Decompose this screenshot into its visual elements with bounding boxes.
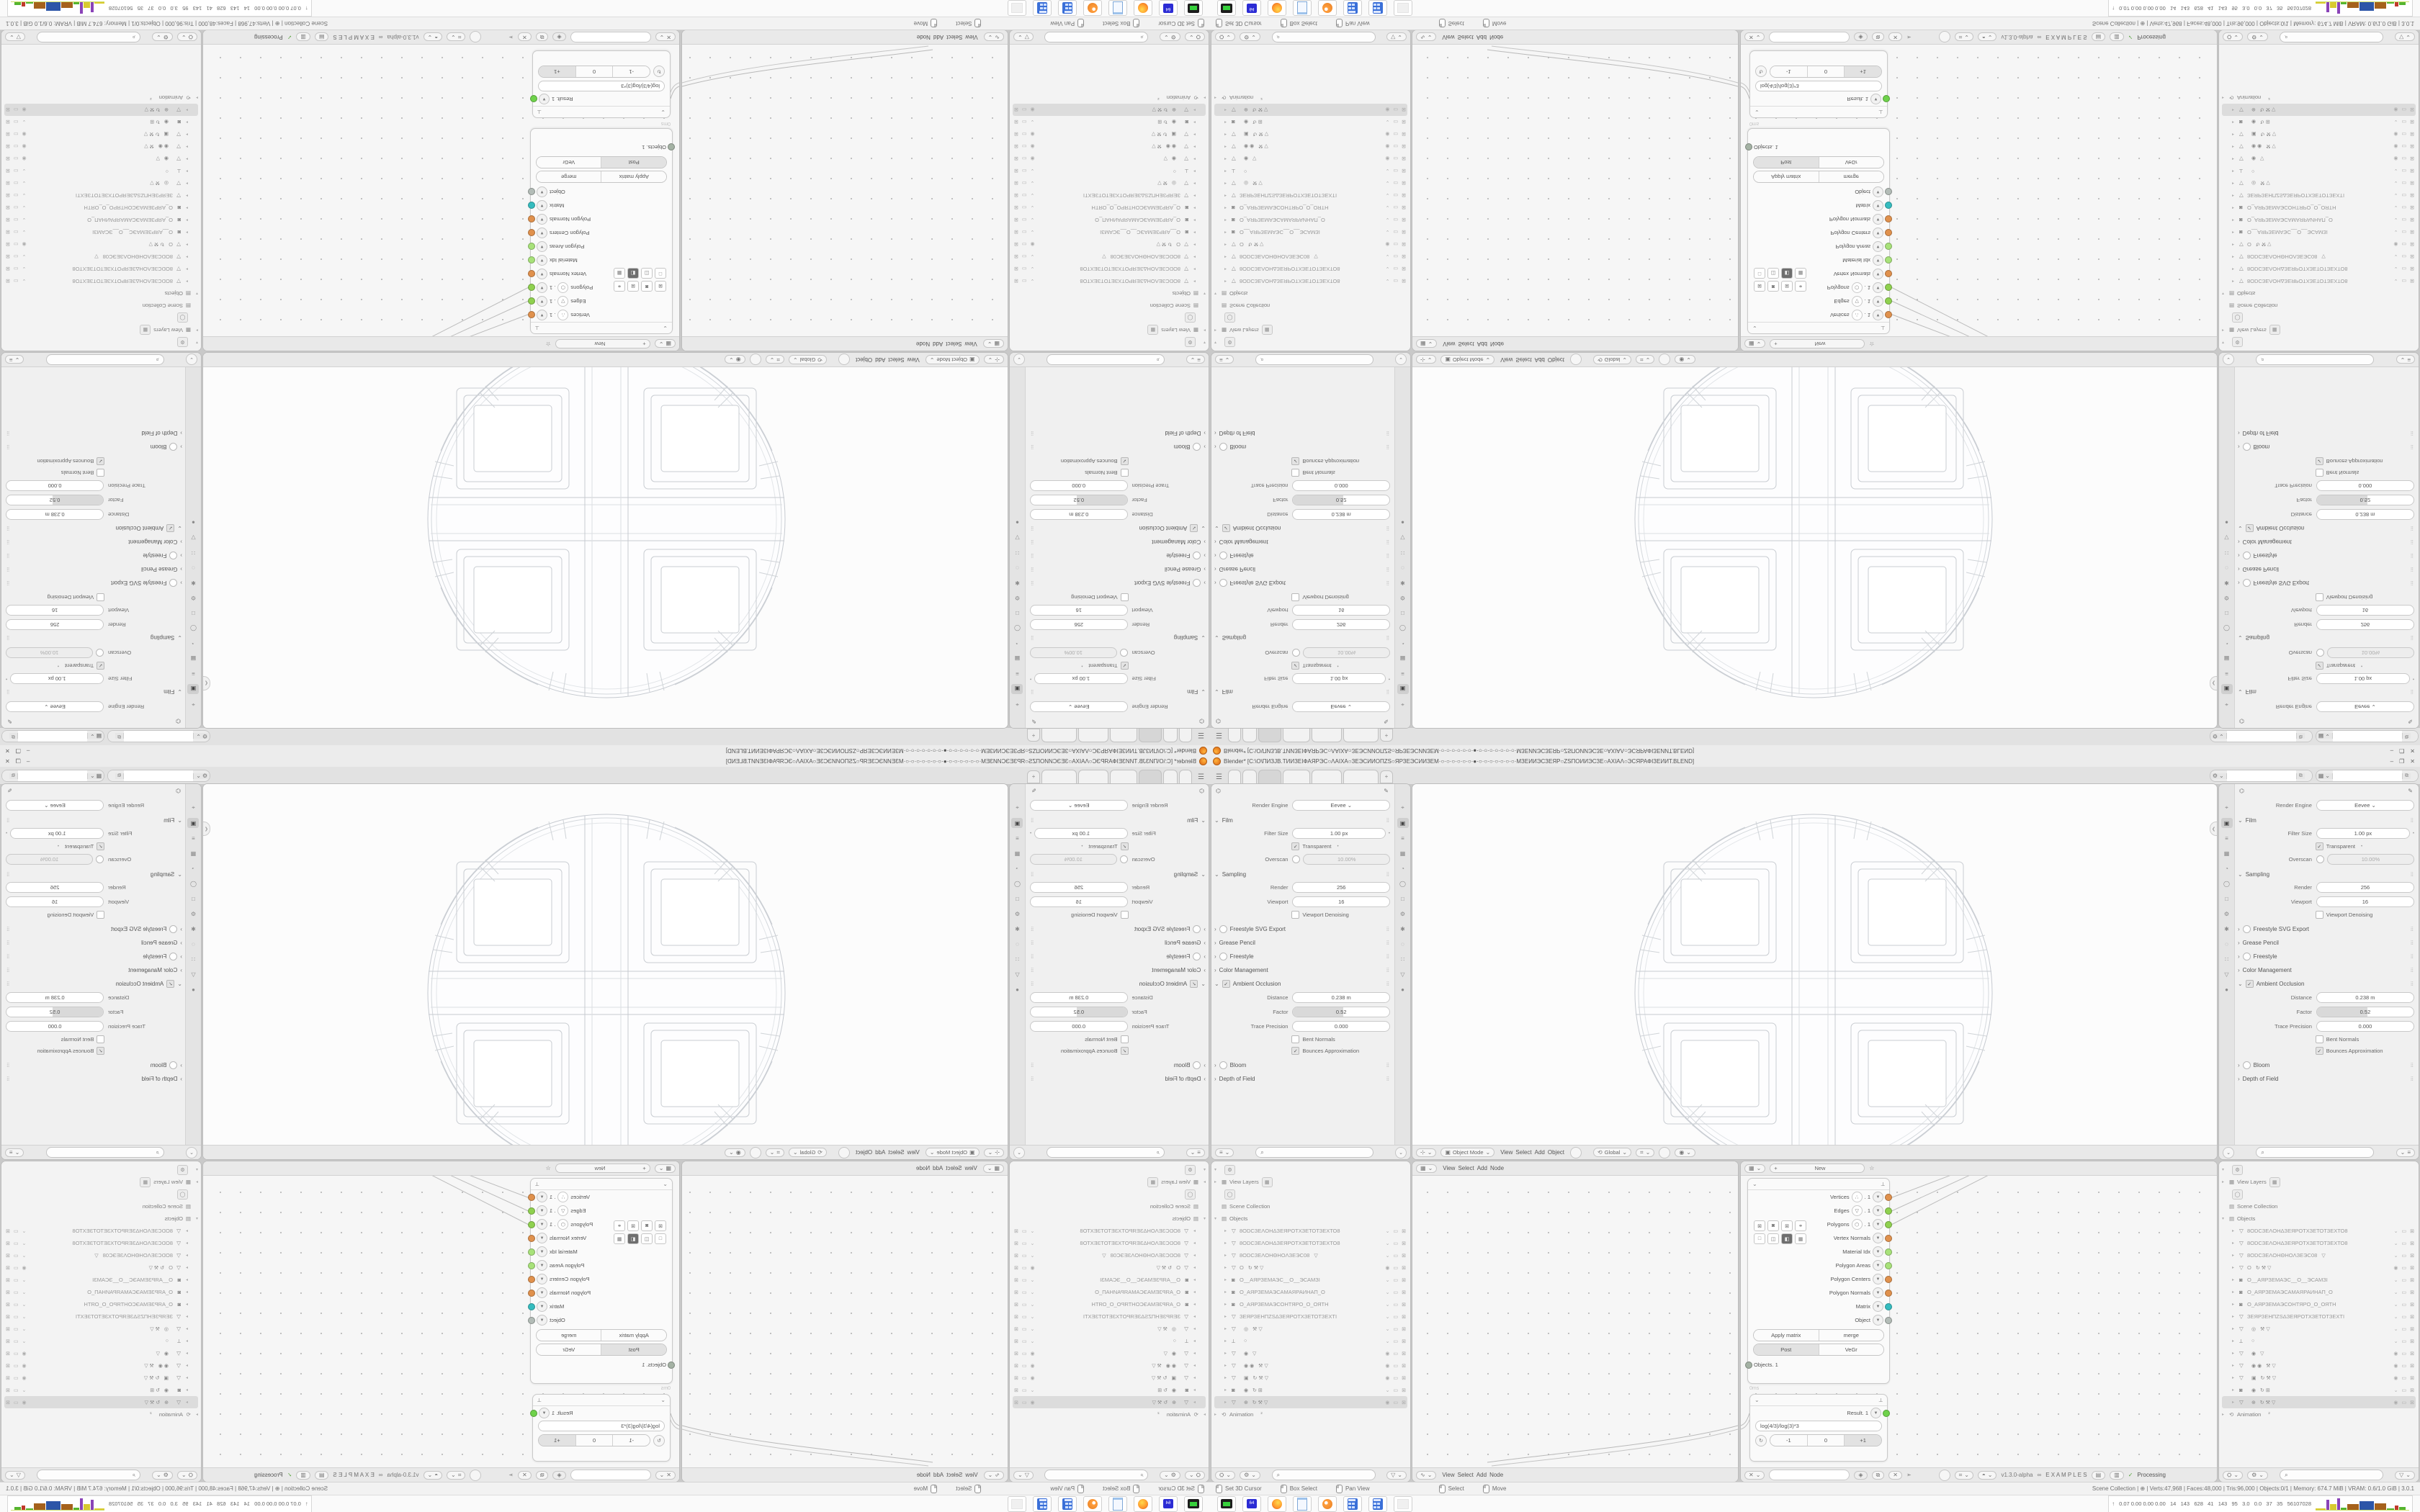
properties-tab-0[interactable]: ⌖ bbox=[1397, 803, 1409, 813]
add-workspace-button[interactable]: + bbox=[1027, 770, 1040, 783]
prop-render[interactable]: Render256 bbox=[1030, 882, 1206, 893]
id-selector-2[interactable]: ▦⌄⧉ bbox=[2316, 730, 2419, 742]
object-row-1[interactable]: ▸▽8ОDСЗЕΛОНΔЗЕЯРОТХЗЕТОТЗЕХТО8⌄▭⊠ bbox=[4, 275, 198, 287]
copy-id-button[interactable]: ⧉ bbox=[115, 773, 124, 779]
animation-row[interactable]: ▸⟲Animation² bbox=[1214, 91, 1407, 104]
unlink-button[interactable]: ✕ bbox=[1888, 1471, 1902, 1480]
properties-tab-6[interactable]: □ bbox=[1397, 894, 1409, 904]
stepper-+1[interactable]: +1 bbox=[539, 66, 576, 77]
section-film[interactable]: ⌄Film⣿ bbox=[2238, 817, 2414, 824]
id-name-field[interactable] bbox=[18, 770, 87, 781]
object-row-6[interactable]: ▸◙О_АЯРЗЕМАЭСАМАЯРАИНАП_О⌄▭⊠ bbox=[1214, 214, 1407, 226]
properties-tab-4[interactable]: ◔ bbox=[2221, 863, 2233, 873]
section-film[interactable]: ⌄Film⣿ bbox=[1214, 688, 1390, 695]
node-toggle-icon[interactable]: ◙ bbox=[1767, 281, 1779, 292]
object-row-7[interactable]: ▸◙О_АЯРЗЕМАЭСОНТЯРО_О_ОЯТН⌄▭⊠ bbox=[4, 202, 198, 214]
prop-render[interactable]: Render256 bbox=[6, 882, 182, 893]
menu-add[interactable]: Add bbox=[931, 1165, 944, 1171]
filter-button[interactable]: ▽⌄ bbox=[2395, 33, 2415, 42]
tree-name-input[interactable] bbox=[570, 32, 651, 42]
properties-tab-8[interactable]: ✱ bbox=[1397, 578, 1409, 588]
node-button-apply-matrix[interactable]: Apply matrix bbox=[602, 1330, 667, 1341]
app-menu-icon[interactable]: ☰ bbox=[1216, 731, 1222, 738]
section-freestyle[interactable]: ›Freestyle⣿ bbox=[1030, 953, 1206, 960]
menu-select[interactable]: Select bbox=[944, 341, 963, 347]
section-color-management[interactable]: ›Color Management⣿ bbox=[2238, 967, 2414, 973]
section-grease-pencil[interactable]: ›Grease Pencil⣿ bbox=[6, 940, 182, 946]
properties-tab-5[interactable]: ◯ bbox=[188, 878, 200, 888]
workspace-tab-2[interactable] bbox=[1242, 728, 1257, 742]
output-socket-polygon-areas[interactable]: Polygon Areas▼ bbox=[531, 1259, 672, 1272]
pivot-button[interactable] bbox=[1570, 1147, 1582, 1158]
filter-button[interactable]: ▽⌄ bbox=[1386, 1471, 1407, 1480]
properties-tab-1[interactable]: ▣ bbox=[188, 818, 200, 828]
object-row-8[interactable]: ▸▽ЗЕЯРЗЕНПZSΔЗЕЯРОТХЗЕТОТЗЕХТІ⌄▭⊠ bbox=[1214, 1310, 1407, 1323]
section-ambient-occlusion[interactable]: ⌄✓Ambient Occlusion⣿ bbox=[1030, 980, 1206, 988]
tree-selector[interactable]: ✕⌄ bbox=[1744, 1471, 1765, 1480]
section-film[interactable]: ⌄Film⣿ bbox=[6, 817, 182, 824]
properties-tab-12[interactable]: ● bbox=[1012, 518, 1023, 528]
properties-tab-4[interactable]: ◔ bbox=[1012, 639, 1023, 649]
properties-tab-0[interactable]: ⌖ bbox=[188, 803, 200, 813]
viewport-3d[interactable]: ❮ ⊹⌄ ▣Object Mode⌄ ViewSelectAddObject ⟲… bbox=[1412, 784, 2217, 1159]
section-freestyle-svg-export[interactable]: ›Freestyle SVG Export⣿ bbox=[6, 925, 182, 933]
snapping-dropdown[interactable]: ⌗⌄ bbox=[766, 356, 784, 364]
examples-menu[interactable]: E X A M P L E S bbox=[333, 1472, 374, 1478]
objects-in-node[interactable]: ⌄⟂ Vertices∴. 1▼Edges▽. 1▼Polygons⬡. 1▼V… bbox=[1747, 128, 1890, 334]
animation-row[interactable]: ▸⟲Animation² bbox=[4, 1408, 198, 1421]
check-bounces-approximation[interactable]: ✓Bounces Approximation bbox=[6, 457, 104, 465]
maximize-button[interactable]: ❐ bbox=[2399, 758, 2404, 765]
properties-tab-11[interactable]: ▽ bbox=[1012, 969, 1023, 979]
properties-tab-0[interactable]: ⌖ bbox=[2221, 699, 2233, 709]
editor-type-button[interactable]: ▦⌄ bbox=[983, 340, 1004, 348]
overlay-toggle[interactable] bbox=[1939, 1470, 1950, 1481]
object-row-3[interactable]: ▸▽8ОDСЗЕΛОНΘНОΛЗЕЭС08▽⌄▭⊠ bbox=[4, 251, 198, 263]
object-row-3[interactable]: ▸▽8ОDСЗЕΛОНΘНОΛЗЕЭС08▽⌄▭⊠ bbox=[1214, 1249, 1407, 1261]
object-row-7[interactable]: ▸◙О_АЯРЗЕМАЭСОНТЯРО_О_ОЯТН⌄▭⊠ bbox=[1214, 1298, 1407, 1310]
section-color-management[interactable]: ›Color Management⣿ bbox=[6, 967, 182, 973]
stepper-0[interactable]: 0 bbox=[576, 66, 614, 77]
examples-menu[interactable]: E X A M P L E S bbox=[333, 34, 374, 40]
check-viewport-denoising[interactable]: Viewport Denoising bbox=[6, 911, 104, 919]
taskbar-icon-firefox[interactable] bbox=[1268, 1, 1286, 17]
menu-add[interactable]: Add bbox=[932, 1472, 945, 1478]
object-row-8[interactable]: ▸▽ЗЕЯРЗЕНПZSΔЗЕЯРОТХЗЕТОТЗЕХТІ⌄▭⊠ bbox=[2222, 1310, 2416, 1323]
object-row-9[interactable]: ▸▽◎ ⚒▽⌄▭⊠ bbox=[1214, 1323, 1407, 1335]
taskbar-icon-floppy-64[interactable]: 64 bbox=[1159, 1, 1178, 17]
workspace-tab-1[interactable] bbox=[1228, 770, 1241, 784]
object-row-3[interactable]: ▸▽8ОDСЗЕΛОНΘНОΛЗЕЭС08▽⌄▭⊠ bbox=[1013, 251, 1206, 263]
properties-tab-12[interactable]: ● bbox=[188, 984, 200, 994]
formula-input[interactable]: log(4/3)/log(3)*3 bbox=[538, 81, 665, 91]
object-row-2[interactable]: ▸▽8ОDСЗЕΛОНΔЗЕЯРОТХЗЕТОТЗЕХТО8⌄▭⊠ bbox=[1013, 1237, 1206, 1249]
object-row-13[interactable]: ▸▽▣ ↻⚒▽◉▭⊠ bbox=[2222, 128, 2416, 140]
section-film[interactable]: ⌄Film⣿ bbox=[1030, 688, 1206, 695]
taskbar-icon-blender[interactable] bbox=[1318, 1, 1337, 17]
object-row-11[interactable]: ▸▽◉ ▽◉▭⊠ bbox=[2222, 1347, 2416, 1359]
view-layers-row[interactable]: ▸▦View Layers▦ bbox=[1214, 324, 1407, 336]
properties-tab-8[interactable]: ✱ bbox=[188, 924, 200, 934]
output-socket-object[interactable]: Object▼ bbox=[531, 185, 672, 199]
scene-collection-row[interactable]: ▤Scene Collection bbox=[4, 300, 198, 312]
object-row-1[interactable]: ▸▽8ОDСЗЕΛОНΔЗЕЯРОТХЗЕТОТЗЕХТО8⌄▭⊠ bbox=[2222, 275, 2416, 287]
properties-tab-4[interactable]: ◔ bbox=[1397, 863, 1409, 873]
output-socket-object[interactable]: Object▼ bbox=[1748, 1313, 1889, 1327]
taskbar-icon-inactive-window[interactable] bbox=[1394, 1496, 1412, 1512]
node-editor-right[interactable]: ▦⌄ +New ☆ ⌄⟂ bbox=[203, 1161, 679, 1482]
menu-view[interactable]: View bbox=[1499, 356, 1514, 363]
node-toggle-icon[interactable]: ⊠ bbox=[1754, 281, 1765, 292]
editor-type-button[interactable]: ≡⌄ bbox=[1186, 1148, 1205, 1157]
object-row-10[interactable]: ▸⟂○⌄▭⊠ bbox=[4, 1335, 198, 1347]
search-input[interactable]: ⌕ bbox=[1272, 1470, 1376, 1480]
workspace-tab-3[interactable] bbox=[1139, 728, 1162, 742]
taskbar-icon-firefox[interactable] bbox=[1268, 1496, 1286, 1512]
object-row-1[interactable]: ▸▽8ОDСЗЕΛОНΔЗЕЯРОТХЗЕТОТЗЕХТО8⌄▭⊠ bbox=[4, 1225, 198, 1237]
workspace-tab-6[interactable] bbox=[1041, 770, 1077, 784]
section-bloom[interactable]: ›Bloom⣿ bbox=[1030, 443, 1206, 451]
object-row-11[interactable]: ▸▽◉ ▽◉▭⊠ bbox=[1214, 1347, 1407, 1359]
scene-collection-row[interactable]: ▤Scene Collection bbox=[1214, 1200, 1407, 1212]
properties-tab-12[interactable]: ● bbox=[2221, 518, 2233, 528]
check-transparent[interactable]: ✓Transparent• bbox=[2316, 662, 2414, 670]
object-row-2[interactable]: ▸▽8ОDСЗЕΛОНΔЗЕЯРОТХЗЕТОТЗЕХТО8⌄▭⊠ bbox=[2222, 1237, 2416, 1249]
object-row-8[interactable]: ▸▽ЗЕЯРЗЕНПZSΔЗЕЯРОТХЗЕТОТЗЕХТІ⌄▭⊠ bbox=[2222, 189, 2416, 202]
workspace-tab-5[interactable] bbox=[1312, 728, 1342, 742]
prop-filter-size[interactable]: Filter Size1.00 px• bbox=[1030, 673, 1206, 684]
display-mode-button[interactable]: ⛭⌄ bbox=[2223, 1471, 2243, 1480]
object-row-7[interactable]: ▸◙О_АЯРЗЕМАЭСОНТЯРО_О_ОЯТН⌄▭⊠ bbox=[1013, 202, 1206, 214]
properties-tab-1[interactable]: ▣ bbox=[1397, 684, 1409, 694]
filter-button[interactable]: ▽⌄ bbox=[2395, 1471, 2415, 1480]
object-row-5[interactable]: ▸◙О__АЯРЗЕМАЭС__О__ЭСАМЗІ⌄▭⊠ bbox=[1214, 1274, 1407, 1286]
object-row-14[interactable]: ▸◙◉ ↻⊞⌄▭⊠ bbox=[4, 1384, 198, 1396]
object-row-1[interactable]: ▸▽8ОDСЗЕΛОНΔЗЕЯРОТХЗЕТОТЗЕХТО8⌄▭⊠ bbox=[1214, 275, 1407, 287]
outliner-root-row[interactable]: ▾⚙ bbox=[2222, 336, 2416, 348]
objects-collection-row[interactable]: ▾▤Objects bbox=[2222, 1212, 2416, 1225]
pivot-button[interactable] bbox=[1570, 354, 1582, 366]
section-ambient-occlusion[interactable]: ⌄✓Ambient Occlusion⣿ bbox=[6, 980, 182, 988]
properties-tab-0[interactable]: ⌖ bbox=[1012, 699, 1023, 709]
node-button-merge[interactable]: merge bbox=[1819, 171, 1884, 182]
taskbar-icon-disk-utility[interactable] bbox=[1184, 1, 1203, 17]
prop-render[interactable]: Render256 bbox=[1214, 619, 1390, 630]
id-selector-1[interactable]: ⚙⌄⧉ bbox=[107, 730, 210, 742]
node-header[interactable]: ⌄⟂ bbox=[1750, 1395, 1887, 1406]
properties-tab-2[interactable]: ≡ bbox=[1012, 833, 1023, 843]
id-selector-1[interactable]: ⚙⌄⧉ bbox=[2210, 730, 2313, 742]
object-row-7[interactable]: ▸◙О_АЯРЗЕМАЭСОНТЯРО_О_ОЯТН⌄▭⊠ bbox=[2222, 202, 2416, 214]
collapse-button[interactable]: ⌄ bbox=[2223, 354, 2234, 366]
object-row-8[interactable]: ▸▽ЗЕЯРЗЕНПZSΔЗЕЯРОТХЗЕТОТЗЕХТІ⌄▭⊠ bbox=[4, 189, 198, 202]
section-bloom[interactable]: ›Bloom⣿ bbox=[2238, 443, 2414, 451]
menu-object[interactable]: Object bbox=[854, 1149, 874, 1156]
fake-user-star-icon[interactable]: ☆ bbox=[546, 1166, 551, 1171]
node-toggle-icon[interactable]: ◫ bbox=[641, 268, 653, 279]
objects-in-node[interactable]: ⌄⟂ Vertices∴. 1▼Edges▽. 1▼Polygons⬡. 1▼V… bbox=[1747, 1178, 1890, 1384]
object-row-5[interactable]: ▸◙О__АЯРЗЕМАЭС__О__ЭСАМЗІ⌄▭⊠ bbox=[2222, 226, 2416, 238]
properties-tab-5[interactable]: ◯ bbox=[2221, 878, 2233, 888]
taskbar-icon-calculator-2[interactable] bbox=[1033, 1, 1052, 17]
properties-tab-12[interactable]: ● bbox=[1397, 518, 1409, 528]
object-row-4[interactable]: ▸▽O↻⚒▽◉▭⊠ bbox=[1013, 238, 1206, 251]
properties-tab-5[interactable]: ◯ bbox=[1397, 624, 1409, 634]
snap-group[interactable]: ⌗⌄ bbox=[447, 33, 465, 42]
outliner-root-row[interactable]: ▾⚙ bbox=[1214, 1164, 1407, 1176]
properties-tab-6[interactable]: □ bbox=[188, 894, 200, 904]
unlink-button[interactable]: ✕ bbox=[1888, 33, 1902, 42]
search-input[interactable]: ⌕ bbox=[1255, 354, 1373, 365]
check-bounces-approximation[interactable]: ✓Bounces Approximation bbox=[1291, 457, 1390, 465]
prop-factor[interactable]: Factor0.52 bbox=[1214, 495, 1390, 505]
output-socket-material-idx[interactable]: Material Idx▼ bbox=[1748, 1245, 1889, 1259]
shield-toggle[interactable]: ◈ bbox=[552, 1471, 565, 1480]
object-row-6[interactable]: ▸◙О_АЯРЗЕМАЭСАМАЯРАИНАП_О⌄▭⊠ bbox=[2222, 214, 2416, 226]
properties-tab-9[interactable]: ◌ bbox=[188, 939, 200, 949]
stepper-+1[interactable]: +1 bbox=[1844, 1435, 1881, 1446]
section-bloom[interactable]: ›Bloom⣿ bbox=[1030, 1061, 1206, 1069]
dropdown-icon[interactable]: ▼ bbox=[539, 1408, 550, 1418]
editor-type-button[interactable]: ⌄≡ bbox=[5, 356, 24, 364]
menu-select[interactable]: Select bbox=[1456, 1165, 1475, 1171]
menu-select[interactable]: Select bbox=[945, 1472, 964, 1478]
properties-tab-6[interactable]: □ bbox=[1012, 608, 1023, 618]
display-group[interactable]: ◓⌄ bbox=[423, 1471, 443, 1480]
node-toggle-icon[interactable]: ◙ bbox=[641, 281, 653, 292]
shading-dropdown[interactable]: ◉⌄ bbox=[1675, 1148, 1695, 1157]
properties-tab-7[interactable]: ⚙ bbox=[1012, 593, 1023, 603]
object-row-6[interactable]: ▸◙О_АЯРЗЕМАЭСАМАЯРАИНАП_О⌄▭⊠ bbox=[4, 214, 198, 226]
taskbar-icon-disk-utility[interactable] bbox=[1184, 1496, 1203, 1512]
editor-type-button[interactable]: ≡⌄ bbox=[1215, 1148, 1234, 1157]
taskbar-icon-calculator-1[interactable] bbox=[1343, 1496, 1362, 1512]
taskbar-icon-calculator-1[interactable] bbox=[1058, 1, 1077, 17]
output-socket-matrix[interactable]: Matrix▼ bbox=[531, 1300, 672, 1313]
object-row-10[interactable]: ▸⟂○⌄▭⊠ bbox=[1013, 1335, 1206, 1347]
section-color-management[interactable]: ›Color Management⣿ bbox=[6, 539, 182, 545]
menu-add[interactable]: Add bbox=[1475, 34, 1488, 40]
object-row-10[interactable]: ▸⟂○⌄▭⊠ bbox=[1013, 165, 1206, 177]
world-row[interactable]: ◯ bbox=[4, 312, 198, 324]
taskbar-icon-inactive-window[interactable] bbox=[1394, 1, 1412, 17]
prop-distance[interactable]: Distance0.238 m bbox=[6, 509, 182, 520]
overlay-toggle[interactable] bbox=[470, 1470, 481, 1481]
workspace-tab-2[interactable] bbox=[1163, 770, 1178, 784]
section-color-management[interactable]: ›Color Management⣿ bbox=[1214, 967, 1390, 973]
check-bent-normals[interactable]: Bent Normals bbox=[2316, 469, 2414, 477]
taskbar-icon-disk-utility[interactable] bbox=[1217, 1, 1236, 17]
fake-user-star-icon[interactable]: ☆ bbox=[546, 341, 551, 347]
sidebar-toggle-icon[interactable]: ❮ bbox=[2210, 822, 2217, 836]
object-row-14[interactable]: ▸◙◉ ↻⊞⌄▭⊠ bbox=[1214, 1384, 1407, 1396]
collapse-button[interactable]: ⌄ bbox=[186, 1147, 197, 1158]
object-row-5[interactable]: ▸◙О__АЯРЗЕМАЭС__О__ЭСАМЗІ⌄▭⊠ bbox=[4, 226, 198, 238]
view-layers-row[interactable]: ▸▦View Layers▦ bbox=[1013, 324, 1206, 336]
prop-overscan[interactable]: Overscan10.00% bbox=[1030, 854, 1206, 865]
sidebar-toggle-icon[interactable]: ❮ bbox=[203, 676, 210, 690]
search-input[interactable]: ⌕ bbox=[2256, 1147, 2374, 1158]
properties-tab-6[interactable]: □ bbox=[1397, 608, 1409, 618]
prop-overscan[interactable]: Overscan10.00% bbox=[2238, 854, 2414, 865]
node-editor-left[interactable]: ▦⌄ ViewSelectAddNode ∿⌄ ViewSelectAddNod… bbox=[1412, 1161, 1738, 1482]
scene-collection-row[interactable]: ▤Scene Collection bbox=[4, 1200, 198, 1212]
menu-view[interactable]: View bbox=[1499, 1149, 1514, 1156]
snap-group[interactable]: ⌗⌄ bbox=[447, 1471, 465, 1480]
prop-filter-size[interactable]: Filter Size1.00 px• bbox=[1030, 828, 1206, 839]
node-editor-left[interactable]: ▦⌄ ViewSelectAddNode ∿⌄ ViewSelectAddNod… bbox=[682, 30, 1008, 351]
node-toggle-icon[interactable]: □ bbox=[1754, 1233, 1765, 1244]
new-tree-button[interactable]: +New bbox=[555, 1164, 650, 1173]
minimize-button[interactable]: – bbox=[2390, 758, 2393, 765]
node-toggle-icon[interactable]: □ bbox=[655, 1233, 666, 1244]
object-row-5[interactable]: ▸◙О__АЯРЗЕМАЭС__О__ЭСАМЗІ⌄▭⊠ bbox=[1013, 226, 1206, 238]
properties-tab-8[interactable]: ✱ bbox=[1012, 924, 1023, 934]
stepper--1[interactable]: -1 bbox=[1770, 66, 1807, 77]
check-transparent[interactable]: ✓Transparent• bbox=[1030, 662, 1129, 670]
properties-tab-3[interactable]: ▦ bbox=[188, 654, 200, 664]
add-workspace-button[interactable]: + bbox=[1380, 729, 1393, 742]
editor-type-button[interactable]: ⌄≡ bbox=[5, 1148, 24, 1157]
node-button-post[interactable]: Post bbox=[1754, 157, 1819, 168]
pin-icon[interactable]: ➣ bbox=[1906, 35, 1912, 40]
section-freestyle[interactable]: ›Freestyle⣿ bbox=[6, 552, 182, 559]
prop-overscan[interactable]: Overscan10.00% bbox=[2238, 647, 2414, 658]
node-editor-right[interactable]: ▦⌄ +New ☆ ⌄⟂ bbox=[203, 30, 679, 351]
properties-tab-10[interactable]: ∷ bbox=[1397, 548, 1409, 558]
workspace-tab-2[interactable] bbox=[1163, 728, 1178, 742]
editor-type-button[interactable]: ∿⌄ bbox=[984, 1471, 1004, 1480]
section-depth-of-field[interactable]: ›Depth of Field⣿ bbox=[2238, 430, 2414, 436]
filter-button[interactable]: ▽⌄ bbox=[1386, 33, 1407, 42]
collapse-button[interactable]: ⌄ bbox=[2223, 1147, 2234, 1158]
taskbar-icon-blender[interactable] bbox=[1318, 1496, 1337, 1512]
taskbar-icon-calculator-2[interactable] bbox=[1033, 1496, 1052, 1512]
properties-tab-2[interactable]: ≡ bbox=[2221, 669, 2233, 679]
check-transparent[interactable]: ✓Transparent• bbox=[2316, 842, 2414, 850]
prop-filter-size[interactable]: Filter Size1.00 px• bbox=[6, 828, 182, 839]
node-button-merge[interactable]: merge bbox=[537, 171, 602, 182]
object-row-14[interactable]: ▸◙◉ ↻⊞⌄▭⊠ bbox=[2222, 116, 2416, 128]
section-freestyle-svg-export[interactable]: ›Freestyle SVG Export⣿ bbox=[1214, 579, 1390, 587]
menu-select[interactable]: Select bbox=[1456, 34, 1475, 40]
prop-viewport[interactable]: Viewport16 bbox=[6, 605, 182, 616]
object-row-15[interactable]: ▸▽⊕ ↻⚒▽◉▭⊠ bbox=[1013, 104, 1206, 116]
properties-tab-5[interactable]: ◯ bbox=[1012, 624, 1023, 634]
properties-tab-9[interactable]: ◌ bbox=[188, 563, 200, 573]
fake-user-star-icon[interactable]: ☆ bbox=[1869, 341, 1874, 347]
search-input[interactable]: ⌕ bbox=[1044, 32, 1148, 42]
viewport-3d[interactable]: ❮ ⊹⌄ ▣Object Mode⌄ ViewSelectAddObject ⟲… bbox=[203, 784, 1008, 1159]
id-name-field[interactable] bbox=[2227, 770, 2296, 781]
animation-row[interactable]: ▸⟲Animation² bbox=[2222, 1408, 2416, 1421]
node-toggle-icon[interactable]: ◙ bbox=[1767, 1220, 1779, 1231]
node-button-post[interactable]: Post bbox=[602, 157, 667, 168]
prop-render-engine[interactable]: Render EngineEevee ⌄ bbox=[2238, 800, 2414, 811]
check-bent-normals[interactable]: Bent Normals bbox=[1030, 1035, 1129, 1043]
properties-tab-4[interactable]: ◔ bbox=[188, 639, 200, 649]
display-mode-button[interactable]: ⛭⌄ bbox=[1185, 33, 1205, 42]
prop-viewport[interactable]: Viewport16 bbox=[1030, 896, 1206, 907]
copy-id-button[interactable]: ⧉ bbox=[9, 734, 18, 739]
object-row-8[interactable]: ▸▽ЗЕЯРЗЕНПZSΔЗЕЯРОТХЗЕТОТЗЕХТІ⌄▭⊠ bbox=[1214, 189, 1407, 202]
node-canvas[interactable]: ⌄⟂ Vertices∴. 1▼Edges▽. 1▼Polygons⬡. 1▼V… bbox=[203, 1176, 679, 1467]
section-film[interactable]: ⌄Film⣿ bbox=[2238, 688, 2414, 695]
menu-node[interactable]: Node bbox=[1488, 1472, 1505, 1478]
menu-view[interactable]: View bbox=[964, 34, 979, 40]
monitor-button[interactable]: ▥ bbox=[2110, 33, 2124, 42]
menu-select[interactable]: Select bbox=[944, 1165, 963, 1171]
search-input[interactable]: ⌕ bbox=[1272, 32, 1376, 42]
section-grease-pencil[interactable]: ›Grease Pencil⣿ bbox=[1214, 940, 1390, 946]
prop-filter-size[interactable]: Filter Size1.00 px• bbox=[6, 673, 182, 684]
tree-selector[interactable]: ✕⌄ bbox=[655, 1471, 676, 1480]
world-row[interactable]: ◯ bbox=[4, 1188, 198, 1200]
copy-id-button[interactable]: ⧉ bbox=[2296, 734, 2305, 739]
check-viewport-denoising[interactable]: Viewport Denoising bbox=[2316, 911, 2414, 919]
taskbar-icon-calculator-2[interactable] bbox=[1368, 1496, 1387, 1512]
node-canvas[interactable]: ⌄⟂ Vertices∴. 1▼Edges▽. 1▼Polygons⬡. 1▼V… bbox=[203, 45, 679, 336]
properties-tab-9[interactable]: ◌ bbox=[1397, 563, 1409, 573]
node-header[interactable]: ⌄⟂ bbox=[1748, 322, 1889, 333]
output-socket-vertices[interactable]: Vertices∴. 1▼ bbox=[531, 308, 672, 322]
properties-tab-6[interactable]: □ bbox=[2221, 894, 2233, 904]
node-toggle-icon[interactable]: ◧ bbox=[627, 268, 639, 279]
properties-tab-12[interactable]: ● bbox=[188, 518, 200, 528]
layout-button[interactable]: ▤ bbox=[2092, 1471, 2106, 1480]
section-depth-of-field[interactable]: ›Depth of Field⣿ bbox=[6, 430, 182, 436]
proportional-edit-button[interactable] bbox=[750, 354, 761, 366]
animation-row[interactable]: ▸⟲Animation² bbox=[2222, 91, 2416, 104]
taskbar-icon-calculator-2[interactable] bbox=[1368, 1, 1387, 17]
object-row-3[interactable]: ▸▽8ОDСЗЕΛОНΘНОΛЗЕЭС08▽⌄▭⊠ bbox=[2222, 1249, 2416, 1261]
copy-button[interactable]: ⧉ bbox=[1872, 1471, 1885, 1480]
node-button-apply-matrix[interactable]: Apply matrix bbox=[602, 171, 667, 182]
properties-tab-2[interactable]: ≡ bbox=[188, 669, 200, 679]
menu-node[interactable]: Node bbox=[915, 341, 931, 347]
display-mode-button[interactable]: ⛭⌄ bbox=[177, 1471, 197, 1480]
menu-view[interactable]: View bbox=[964, 341, 979, 347]
properties-tab-7[interactable]: ⚙ bbox=[2221, 909, 2233, 919]
object-row-15[interactable]: ▸▽⊕ ↻⚒▽◉▭⊠ bbox=[1214, 104, 1407, 116]
prop-trace-precision[interactable]: Trace Precision0.000 bbox=[1030, 1021, 1206, 1032]
collapse-button[interactable]: ⌄ bbox=[186, 354, 197, 366]
object-row-6[interactable]: ▸◙О_АЯРЗЕМАЭСАМАЯРАИНАП_О⌄▭⊠ bbox=[4, 1286, 198, 1298]
node-header[interactable]: ⌄⟂ bbox=[1748, 1179, 1889, 1190]
properties-tab-5[interactable]: ◯ bbox=[1397, 878, 1409, 888]
animation-row[interactable]: ▸⟲Animation² bbox=[1013, 91, 1206, 104]
node-toggle-icon[interactable]: ◙ bbox=[641, 1220, 653, 1231]
check-bent-normals[interactable]: Bent Normals bbox=[6, 1035, 104, 1043]
close-button[interactable]: ✕ bbox=[5, 747, 10, 754]
object-row-6[interactable]: ▸◙О_АЯРЗЕМАЭСАМАЯРАИНАП_О⌄▭⊠ bbox=[1013, 1286, 1206, 1298]
prop-viewport[interactable]: Viewport16 bbox=[1214, 605, 1390, 616]
prop-distance[interactable]: Distance0.238 m bbox=[2238, 509, 2414, 520]
check-bounces-approximation[interactable]: ✓Bounces Approximation bbox=[2316, 1047, 2414, 1055]
prop-render[interactable]: Render256 bbox=[2238, 882, 2414, 893]
shield-toggle[interactable]: ◈ bbox=[552, 33, 565, 42]
menu-select[interactable]: Select bbox=[887, 1149, 905, 1156]
section-depth-of-field[interactable]: ›Depth of Field⣿ bbox=[1214, 430, 1390, 436]
copy-id-button[interactable]: ⧉ bbox=[9, 773, 18, 779]
object-row-6[interactable]: ▸◙О_АЯРЗЕМАЭСАМАЯРАИНАП_О⌄▭⊠ bbox=[1013, 214, 1206, 226]
node-button-vegr[interactable]: VeGr bbox=[1819, 1344, 1884, 1355]
properties-tab-11[interactable]: ▽ bbox=[188, 533, 200, 543]
taskbar-icon-notepad[interactable] bbox=[1293, 1496, 1312, 1512]
check-bounces-approximation[interactable]: ✓Bounces Approximation bbox=[1030, 457, 1129, 465]
check-viewport-denoising[interactable]: Viewport Denoising bbox=[1291, 593, 1390, 601]
object-row-14[interactable]: ▸◙◉ ↻⊞⌄▭⊠ bbox=[1013, 116, 1206, 128]
